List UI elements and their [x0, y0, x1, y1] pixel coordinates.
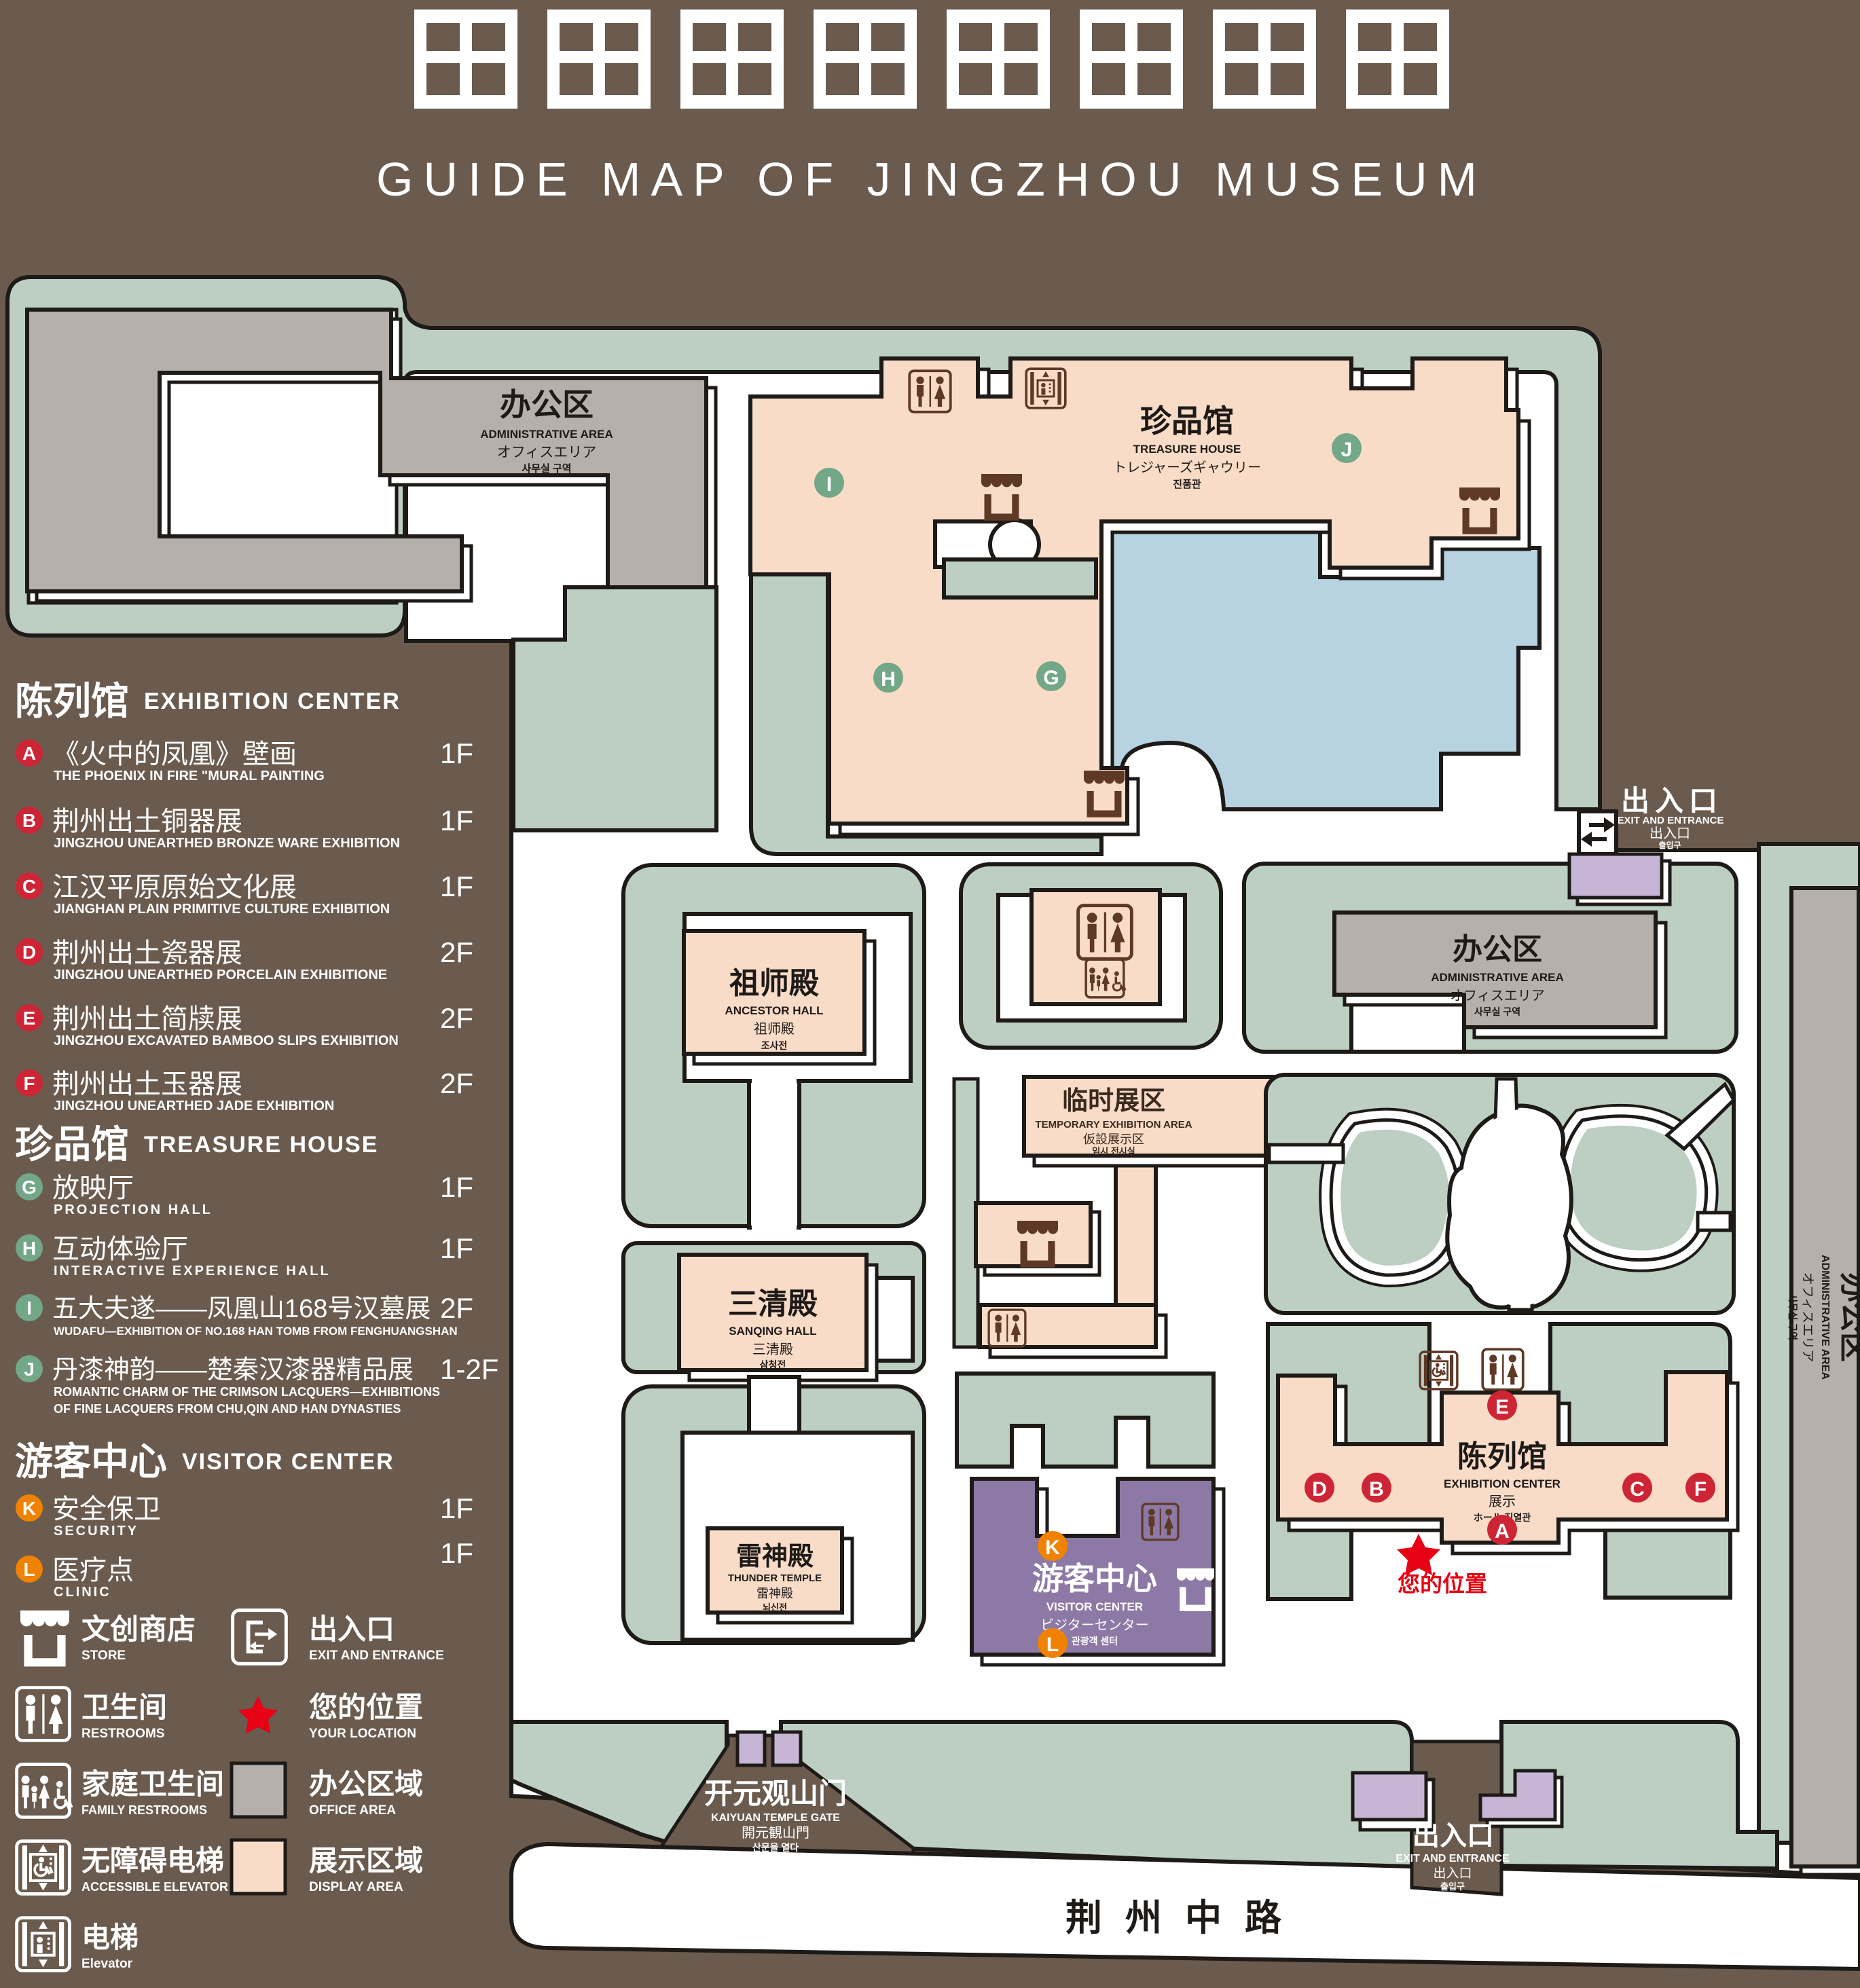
svg-text:EXHIBITION CENTER: EXHIBITION CENTER	[1444, 1477, 1561, 1490]
svg-text:F: F	[23, 1073, 35, 1094]
svg-text:オフィスエリア: オフィスエリア	[1450, 989, 1545, 1004]
svg-text:VISITOR CENTER: VISITOR CENTER	[1046, 1600, 1143, 1613]
svg-text:ADMINISTRATIVE AREA: ADMINISTRATIVE AREA	[480, 428, 613, 441]
svg-text:荆州出土铜器展: 荆州出土铜器展	[52, 807, 242, 836]
svg-text:荆州出土瓷器展: 荆州出土瓷器展	[52, 938, 242, 968]
svg-text:1F: 1F	[440, 1537, 473, 1569]
svg-text:산문을 열다: 산문을 열다	[752, 1842, 799, 1853]
svg-text:您的位置: 您的位置	[309, 1691, 423, 1723]
svg-text:임시 전시실: 임시 전시실	[1092, 1146, 1135, 1156]
svg-text:사무실 구역: 사무실 구역	[1787, 1294, 1798, 1340]
svg-text:开元观山门: 开元观山门	[704, 1778, 847, 1809]
svg-text:1F: 1F	[440, 870, 473, 902]
svg-text:OF FINE LACQUERS FROM CHU,QIN: OF FINE LACQUERS FROM CHU,QIN AND HAN DY…	[54, 1402, 401, 1416]
svg-text:珍品馆: 珍品馆	[15, 1123, 129, 1166]
svg-text:PROJECTION HALL: PROJECTION HALL	[54, 1202, 213, 1217]
svg-text:JINGZHOU UNEARTHED PORCELAIN E: JINGZHOU UNEARTHED PORCELAIN EXHIBITIONE	[54, 968, 387, 982]
svg-text:JIANGHAN PLAIN PRIMITIVE CULTU: JIANGHAN PLAIN PRIMITIVE CULTURE EXHIBIT…	[54, 902, 390, 917]
svg-text:珍品馆: 珍品馆	[1140, 403, 1234, 439]
svg-text:VISITOR CENTER: VISITOR CENTER	[182, 1449, 395, 1475]
svg-text:电梯: 电梯	[81, 1921, 139, 1953]
svg-text:조사전: 조사전	[761, 1040, 788, 1051]
svg-text:開元観山門: 開元観山門	[742, 1825, 809, 1841]
svg-text:THE PHOENIX IN FIRE "MURAL PAI: THE PHOENIX IN FIRE "MURAL PAINTING	[54, 769, 325, 784]
svg-text:JINGZHOU UNEARTHED BRONZE WARE: JINGZHOU UNEARTHED BRONZE WARE EXHIBITIO…	[54, 836, 400, 851]
svg-text:F: F	[1694, 1478, 1707, 1501]
svg-text:JINGZHOU UNEARTHED JADE EXHIBI: JINGZHOU UNEARTHED JADE EXHIBITION	[54, 1099, 334, 1113]
svg-text:STORE: STORE	[81, 1649, 126, 1663]
svg-text:2F: 2F	[440, 1002, 473, 1034]
svg-text:仮設展示区: 仮設展示区	[1083, 1133, 1144, 1146]
svg-text:出入口: 出入口	[1433, 1866, 1472, 1881]
svg-text:办公区域: 办公区域	[309, 1768, 423, 1800]
svg-text:C: C	[22, 876, 36, 897]
svg-text:临时展区: 临时展区	[1062, 1087, 1165, 1116]
svg-text:ROMANTIC CHARM OF THE CRIMSON: ROMANTIC CHARM OF THE CRIMSON LACQUERS—E…	[54, 1385, 440, 1399]
svg-text:荆州出土简牍展: 荆州出土简牍展	[52, 1004, 242, 1034]
svg-text:出入口: 出入口	[309, 1613, 395, 1645]
svg-text:G: G	[22, 1177, 37, 1198]
svg-text:オフィスエリア: オフィスエリア	[1800, 1272, 1815, 1363]
svg-text:DISPLAY AREA: DISPLAY AREA	[309, 1880, 403, 1894]
svg-text:WUDAFU—EXHIBITION OF NO.168 HA: WUDAFU—EXHIBITION OF NO.168 HAN TOMB FRO…	[54, 1325, 458, 1338]
svg-text:放映厅: 放映厅	[52, 1173, 134, 1203]
svg-text:K: K	[1045, 1536, 1060, 1559]
svg-text:출입구: 출입구	[1658, 840, 1681, 850]
svg-text:KAIYUAN TEMPLE GATE: KAIYUAN TEMPLE GATE	[711, 1812, 840, 1824]
svg-text:办公区: 办公区	[1837, 1272, 1860, 1362]
svg-text:祖师殿: 祖师殿	[754, 1021, 795, 1037]
svg-text:SECURITY: SECURITY	[54, 1524, 139, 1539]
svg-text:H: H	[22, 1238, 36, 1259]
svg-text:E: E	[1495, 1396, 1509, 1418]
svg-text:1F: 1F	[440, 1171, 473, 1203]
svg-text:출입구: 출입구	[1440, 1881, 1465, 1892]
svg-text:RESTROOMS: RESTROOMS	[81, 1727, 164, 1741]
svg-text:2F: 2F	[440, 1292, 473, 1324]
svg-text:TREASURE HOUSE: TREASURE HOUSE	[1133, 443, 1241, 456]
svg-text:出入口: 出入口	[1621, 785, 1723, 817]
svg-text:1F: 1F	[440, 805, 473, 836]
svg-text:2F: 2F	[440, 936, 473, 968]
svg-text:文创商店: 文创商店	[81, 1613, 196, 1645]
svg-text:出入口: 出入口	[1412, 1821, 1494, 1851]
svg-text:雷神殿: 雷神殿	[736, 1543, 814, 1571]
svg-text:B: B	[22, 810, 36, 831]
svg-text:五大夫遂——凤凰山168号汉墓展: 五大夫遂——凤凰山168号汉墓展	[52, 1295, 431, 1323]
svg-text:D: D	[1312, 1478, 1327, 1501]
svg-text:《火中的凤凰》壁画: 《火中的凤凰》壁画	[52, 739, 297, 769]
svg-text:展示区域: 展示区域	[309, 1845, 423, 1877]
svg-text:D: D	[22, 942, 36, 963]
svg-text:1F: 1F	[440, 737, 473, 769]
svg-text:GUIDE MAP OF JINGZHOU MUSEUM: GUIDE MAP OF JINGZHOU MUSEUM	[376, 153, 1487, 206]
svg-text:オフィスエリア: オフィスエリア	[497, 445, 597, 460]
svg-text:INTERACTIVE EXPERIENCE HALL: INTERACTIVE EXPERIENCE HALL	[54, 1264, 331, 1278]
svg-text:荆州出土玉器展: 荆州出土玉器展	[52, 1069, 242, 1099]
svg-text:진품관: 진품관	[1173, 479, 1201, 490]
svg-text:YOUR LOCATION: YOUR LOCATION	[309, 1727, 416, 1741]
svg-text:互动体验厅: 互动体验厅	[52, 1234, 188, 1264]
svg-text:您的位置: 您的位置	[1398, 1571, 1487, 1596]
svg-text:安全保卫: 安全保卫	[52, 1494, 161, 1524]
svg-text:TREASURE HOUSE: TREASURE HOUSE	[144, 1132, 378, 1158]
svg-text:H: H	[881, 668, 896, 691]
svg-text:A: A	[22, 743, 36, 764]
svg-text:C: C	[1630, 1478, 1645, 1501]
svg-text:사무실 구역: 사무실 구역	[522, 463, 571, 475]
svg-text:江汉平原原始文化展: 江汉平原原始文化展	[52, 872, 297, 902]
svg-text:관광객 센터: 관광객 센터	[1072, 1636, 1118, 1646]
svg-text:B: B	[1369, 1478, 1384, 1501]
svg-text:三清殿: 三清殿	[728, 1287, 818, 1321]
svg-text:K: K	[22, 1498, 36, 1519]
svg-text:J: J	[24, 1359, 35, 1380]
svg-text:FAMILY RESTROOMS: FAMILY RESTROOMS	[81, 1803, 207, 1817]
svg-text:无障碍电梯: 无障碍电梯	[81, 1845, 224, 1877]
svg-text:卫生间: 卫生间	[81, 1691, 167, 1723]
svg-text:I: I	[826, 473, 832, 496]
svg-text:뇌신전: 뇌신전	[763, 1602, 787, 1613]
svg-text:Elevator: Elevator	[81, 1957, 133, 1971]
svg-text:ADMINISTRATIVE AREA: ADMINISTRATIVE AREA	[1431, 971, 1564, 984]
svg-text:三清殿: 三清殿	[752, 1342, 793, 1357]
svg-text:A: A	[1495, 1520, 1510, 1543]
svg-text:ADMINISTRATIVE AREA: ADMINISTRATIVE AREA	[1819, 1255, 1831, 1380]
svg-text:游客中心: 游客中心	[15, 1440, 167, 1483]
svg-text:2F: 2F	[440, 1067, 473, 1099]
svg-text:EXIT AND ENTRANCE: EXIT AND ENTRANCE	[309, 1649, 444, 1663]
svg-text:EXHIBITION CENTER: EXHIBITION CENTER	[144, 688, 401, 714]
svg-text:ACCESSIBLE ELEVATOR: ACCESSIBLE ELEVATOR	[81, 1880, 228, 1894]
svg-text:1F: 1F	[440, 1232, 473, 1264]
svg-text:医疗点: 医疗点	[52, 1556, 134, 1585]
svg-text:SANQING HALL: SANQING HALL	[729, 1325, 816, 1338]
svg-text:办公区: 办公区	[500, 387, 594, 422]
svg-text:展示: 展示	[1489, 1494, 1516, 1509]
svg-text:トレジャーズギャウリー: トレジャーズギャウリー	[1113, 460, 1261, 475]
svg-text:出入口: 出入口	[1649, 826, 1690, 841]
svg-text:THUNDER TEMPLE: THUNDER TEMPLE	[728, 1572, 822, 1584]
svg-text:삼청전: 삼청전	[760, 1359, 786, 1370]
svg-text:雷神殿: 雷神殿	[756, 1587, 793, 1600]
svg-text:CLINIC: CLINIC	[54, 1585, 111, 1600]
svg-text:荆州中路: 荆州中路	[1065, 1898, 1305, 1938]
svg-text:家庭卫生间: 家庭卫生间	[81, 1768, 224, 1800]
svg-text:EXIT AND ENTRANCE: EXIT AND ENTRANCE	[1618, 815, 1724, 826]
svg-text:办公区: 办公区	[1453, 933, 1542, 966]
svg-text:L: L	[1046, 1634, 1059, 1656]
svg-text:L: L	[23, 1559, 35, 1580]
svg-text:游客中心: 游客中心	[1032, 1561, 1157, 1596]
svg-text:ANCESTOR HALL: ANCESTOR HALL	[725, 1004, 823, 1017]
svg-text:OFFICE AREA: OFFICE AREA	[309, 1803, 396, 1818]
svg-text:陈列馆: 陈列馆	[15, 680, 129, 722]
svg-text:EXIT AND ENTRANCE: EXIT AND ENTRANCE	[1396, 1853, 1510, 1864]
svg-text:사무실 구역: 사무실 구역	[1474, 1006, 1520, 1017]
svg-text:祖师殿: 祖师殿	[729, 967, 819, 1000]
svg-text:1-2F: 1-2F	[440, 1353, 498, 1385]
svg-text:G: G	[1043, 667, 1059, 689]
svg-text:E: E	[23, 1008, 36, 1029]
svg-text:1F: 1F	[440, 1492, 473, 1524]
svg-text:J: J	[1341, 439, 1353, 461]
svg-text:I: I	[26, 1297, 32, 1319]
svg-text:丹漆神韵——楚秦汉漆器精品展: 丹漆神韵——楚秦汉漆器精品展	[52, 1356, 414, 1384]
svg-text:TEMPORARY EXHIBITION AREA: TEMPORARY EXHIBITION AREA	[1035, 1119, 1192, 1130]
svg-text:陈列馆: 陈列馆	[1457, 1440, 1547, 1473]
svg-text:JINGZHOU EXCAVATED BAMBOO SLIP: JINGZHOU EXCAVATED BAMBOO SLIPS EXHIBITI…	[54, 1033, 399, 1048]
